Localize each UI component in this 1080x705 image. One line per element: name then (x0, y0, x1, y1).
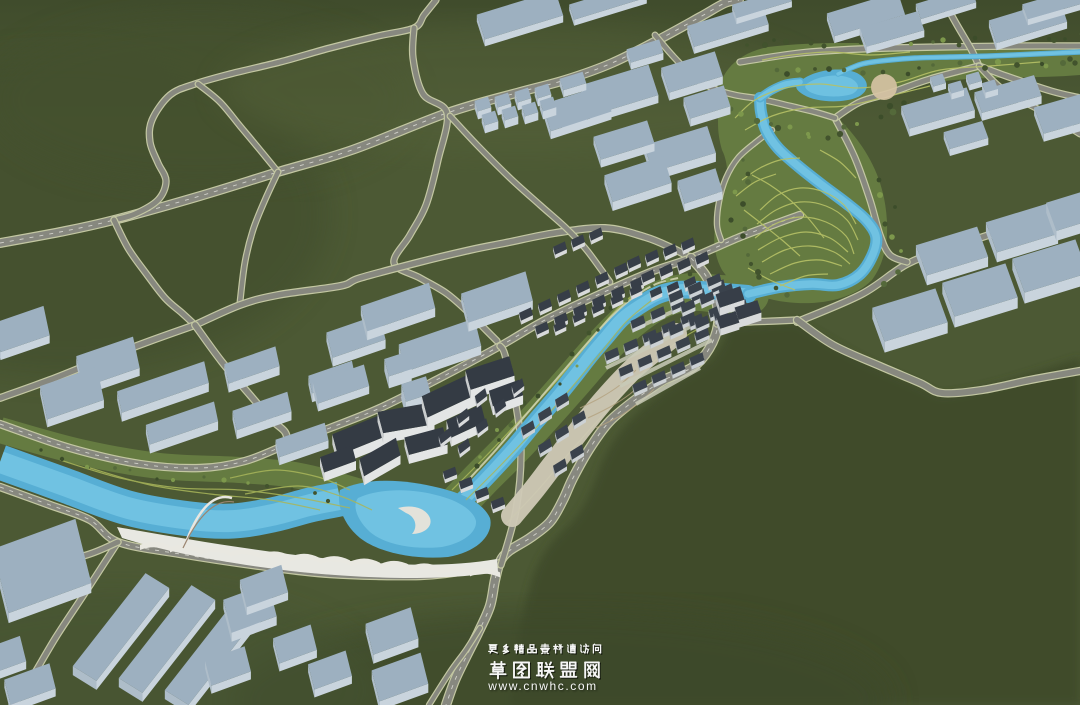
svg-text:www.cnwhc.com: www.cnwhc.com (487, 679, 598, 693)
